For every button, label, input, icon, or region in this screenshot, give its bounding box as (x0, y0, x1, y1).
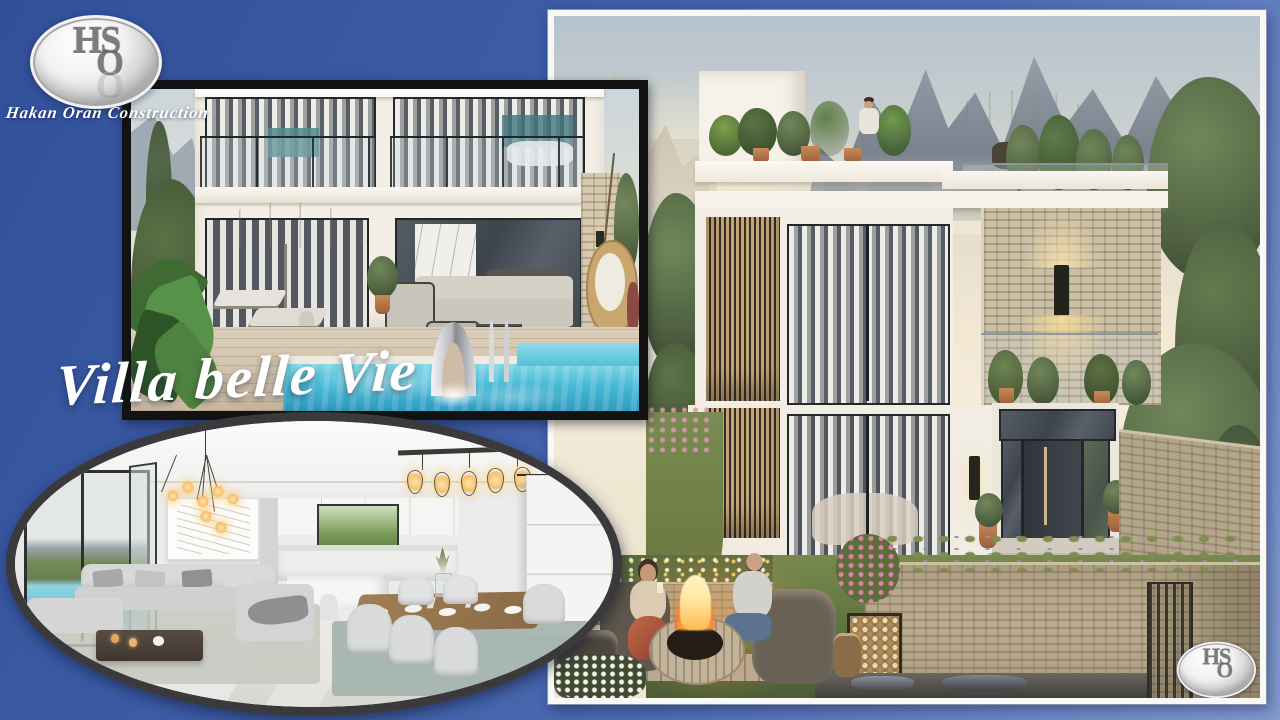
car-glint (942, 675, 1027, 691)
photo-villa-exterior: HS O (548, 10, 1266, 704)
dining-chair (523, 584, 565, 624)
roof-planter-row (709, 94, 949, 162)
lounger (248, 308, 329, 326)
table-candle (129, 638, 137, 647)
sofa-ottoman (27, 598, 123, 632)
monogram-reflection: O (70, 71, 122, 97)
promo-collage: HS O (0, 0, 1280, 720)
roof-edge (195, 89, 604, 97)
side-table (299, 311, 314, 325)
wood-stump-table (833, 633, 861, 677)
sconce-glow-up (1023, 210, 1101, 269)
fascia (695, 191, 1168, 209)
wall-sconce (1054, 265, 1070, 316)
dining-chair (443, 575, 479, 604)
dining-chair (389, 615, 434, 664)
place-setting (473, 603, 492, 611)
mullion (866, 414, 869, 554)
company-name: Hakan Oran Construction (5, 103, 218, 123)
villa-exterior-scene: HS O (554, 16, 1260, 698)
balcony-balustrade (390, 136, 583, 190)
agave-plant (1027, 357, 1059, 405)
roof-parapet (695, 161, 953, 181)
monogram-bottom: O (1201, 663, 1232, 679)
door-handle (1044, 447, 1048, 525)
place-setting (503, 605, 522, 613)
dining-chair (398, 577, 434, 606)
plant-pot (801, 146, 820, 163)
pink-flowers (646, 405, 710, 453)
sofa-pillow (92, 568, 124, 588)
linear-pendant-rod (517, 450, 518, 467)
linear-pendant-rod (469, 451, 470, 468)
car-glint (851, 676, 915, 690)
entry-sidelight (1001, 439, 1023, 543)
interior-scene (15, 421, 613, 707)
pendant-bulb (200, 510, 212, 523)
lounger (213, 290, 288, 306)
kitchen-window (317, 504, 399, 551)
place-setting (438, 607, 457, 615)
bar-stool (320, 594, 338, 620)
pool-water-right (517, 343, 639, 366)
egg-chair-cushion (595, 253, 625, 311)
floor-slab (195, 187, 604, 203)
terrace-plant (367, 256, 397, 298)
roof-plant (877, 105, 911, 156)
linear-pendant-rod (422, 452, 423, 469)
dining-chair (434, 627, 479, 676)
roof-deck-slab (942, 171, 1168, 189)
planter-grasses (879, 531, 1246, 572)
pink-flower-bush (836, 534, 900, 602)
wall-art-image (177, 505, 251, 554)
slat-screen-upper (706, 217, 780, 401)
drink-glass (657, 582, 663, 593)
entry-door (1022, 439, 1082, 543)
hso-logo: HS O O (30, 15, 162, 109)
flame-core (680, 575, 711, 630)
sofa-pillow (182, 569, 213, 588)
person-gardener-torso (859, 108, 878, 134)
mullion (866, 224, 869, 401)
plant-pot (999, 388, 1015, 404)
table-decor (153, 636, 165, 646)
hso-logo-watermark: HS O (1177, 642, 1256, 698)
terracotta-pot (375, 295, 390, 314)
place-setting (404, 604, 423, 612)
man-torso (733, 571, 772, 619)
dining-chair (347, 604, 392, 653)
agave-plant (1122, 360, 1150, 404)
pool-handrail (489, 321, 494, 382)
wall-sconce (969, 456, 980, 500)
table-candle (111, 634, 119, 643)
seated-woman (627, 282, 639, 334)
entry-transom (999, 409, 1116, 442)
balcony-balustrade (200, 136, 375, 190)
waterfall-splash (428, 382, 479, 408)
photo-interior (6, 412, 622, 716)
